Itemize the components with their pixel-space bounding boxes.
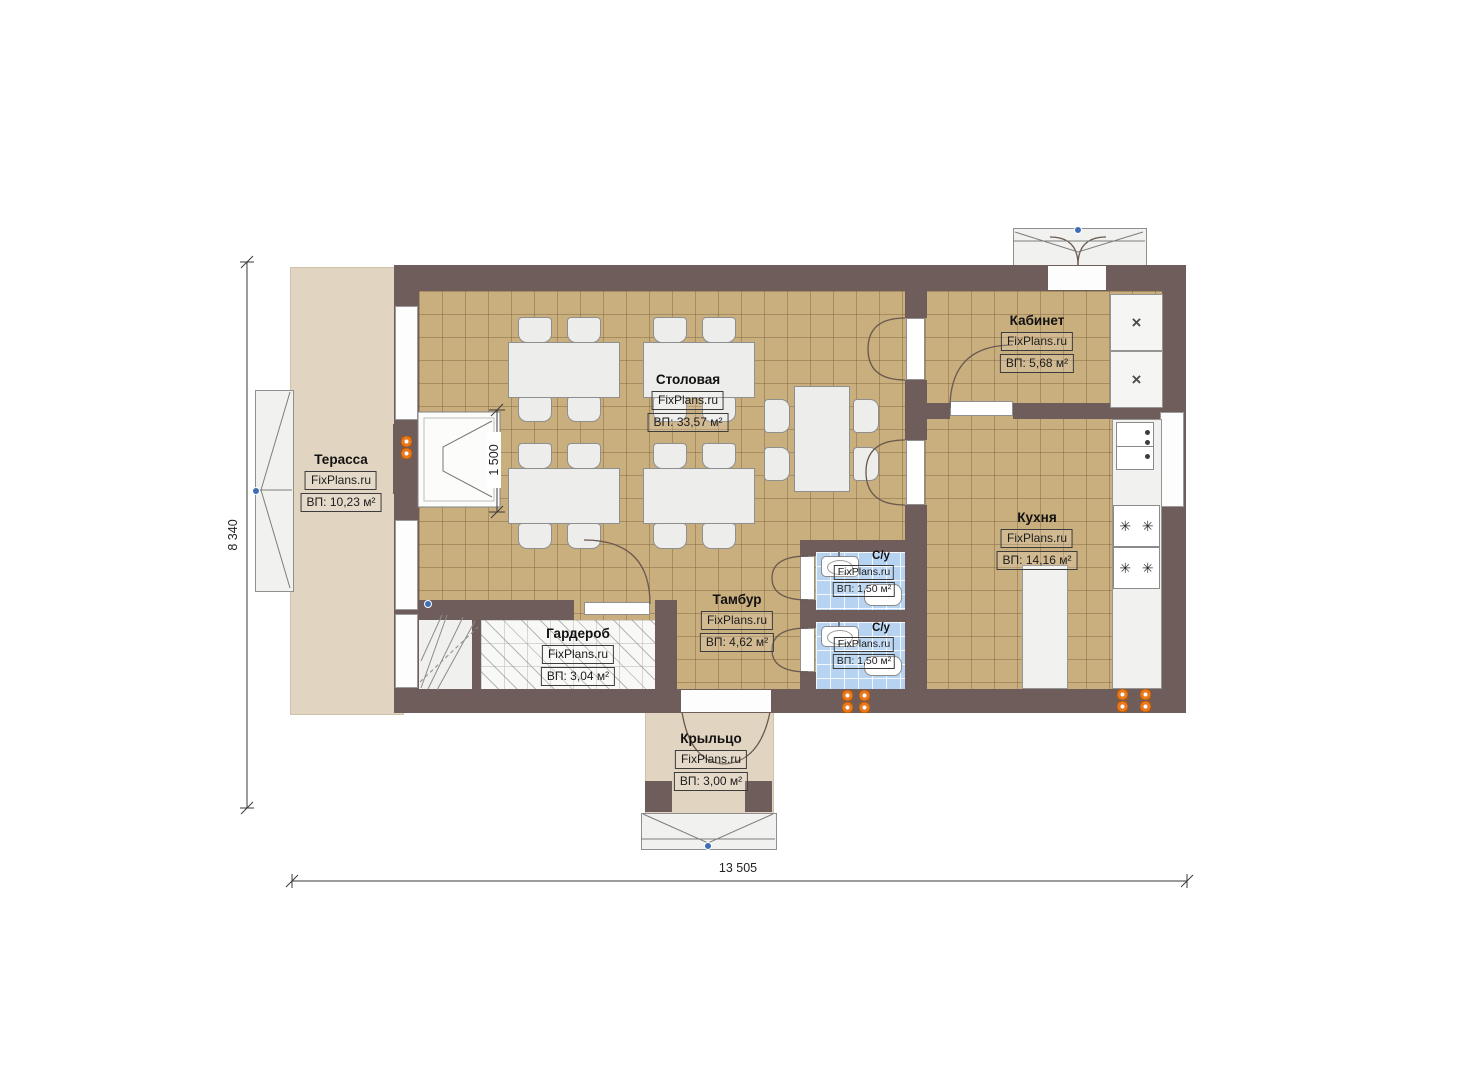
radiator-icon [858,690,871,713]
room-name: Тамбур [713,592,762,608]
room-name: Кухня [1017,510,1056,526]
office-entry-steps [1013,228,1147,267]
stove-burners: ✳ ✳ [1113,547,1160,589]
brand-watermark: FixPlans.ru [834,565,895,580]
chair [567,396,601,422]
porch-steps [641,813,777,850]
chair [702,317,736,343]
kitchen-island-counter [1022,565,1068,689]
window-left-3 [395,614,418,688]
door-leaf-office-kitchen [950,401,1013,416]
wall-dining-right-1 [905,291,927,318]
room-label-porch: Крыльцо FixPlans.ru ВП: 3,00 м² [674,731,748,791]
wall-office-kitchen-1 [927,403,950,419]
room-label-bath-top: С/у FixPlans.ru ВП: 1,50 м² [833,550,895,597]
brand-watermark: FixPlans.ru [542,645,614,664]
wall-bath-left-2 [800,600,816,628]
kitchen-sink-divider [1116,446,1154,447]
dining-table [508,342,620,398]
burner-icon: ✳ [1119,518,1131,535]
door-leaf-wardrobe [584,602,650,615]
room-area: ВП: 3,04 м² [541,667,615,686]
dining-table [643,468,755,524]
room-name: Столовая [656,372,720,388]
brand-watermark: FixPlans.ru [1001,529,1073,548]
room-name: Гардероб [546,626,610,642]
chair [853,447,879,481]
chair [653,523,687,549]
porch-entry-opening [681,690,771,712]
room-label-office: Кабинет FixPlans.ru ВП: 5,68 м² [1000,313,1074,373]
room-area: ВП: 14,16 м² [997,551,1078,570]
fireplace-back-plate [393,424,420,494]
room-area: ВП: 1,50 м² [833,654,895,669]
room-label-bath-bottom: С/у FixPlans.ru ВП: 1,50 м² [833,622,895,669]
chair [518,443,552,469]
chair [702,523,736,549]
porch-pillar-left [645,781,672,812]
dimension-fireplace-width: 1 500 [487,432,501,488]
door-leaf-bath-bottom [800,628,815,672]
chair [567,443,601,469]
chair [653,317,687,343]
wall-wardrobe-top [412,600,574,620]
chair [518,523,552,549]
wall-stairs-divider [472,614,481,689]
chair [764,447,790,481]
room-area: ВП: 10,23 м² [301,493,382,512]
room-label-kitchen: Кухня FixPlans.ru ВП: 14,16 м² [997,510,1078,570]
chair [764,399,790,433]
door-leaf-office [906,318,925,380]
room-name: Кабинет [1010,313,1065,329]
office-entry-opening [1048,266,1106,290]
terrace-entry-steps [255,390,294,592]
chair [853,399,879,433]
burner-icon: ✳ [1142,560,1154,577]
brand-watermark: FixPlans.ru [675,750,747,769]
burner-icon: ✳ [1142,518,1154,535]
room-label-tambour: Тамбур FixPlans.ru ВП: 4,62 м² [700,592,774,652]
chair [567,317,601,343]
window-left-1 [395,306,418,420]
room-area: ВП: 3,00 м² [674,772,748,791]
porch-pillar-right [745,781,772,812]
office-cabinet: × [1110,294,1163,351]
room-name: Терасса [314,452,368,468]
stove-burners: ✳ ✳ [1113,505,1160,547]
room-area: ВП: 5,68 м² [1000,354,1074,373]
radiator-icon [400,436,413,459]
wall-wardrobe-tambour [655,600,677,689]
room-label-dining: Столовая FixPlans.ru ВП: 33,57 м² [648,372,729,432]
faucet-dot [1145,430,1150,435]
wall-bath-left-1 [800,546,816,556]
dimension-overall-width: 13 505 [708,861,768,875]
radiator-icon [1116,689,1129,712]
cabinet-cross-icon: × [1132,313,1142,333]
dimension-overall-height: 8 340 [226,507,240,563]
door-leaf-kitchen [906,440,925,505]
chair [518,317,552,343]
room-label-wardrobe: Гардероб FixPlans.ru ВП: 3,04 м² [541,626,615,686]
radiator-icon [1139,689,1152,712]
stairs-floor [419,612,472,689]
chair [518,396,552,422]
faucet-dot [1145,454,1150,459]
office-cabinet: × [1110,351,1163,408]
room-area: ВП: 33,57 м² [648,413,729,432]
brand-watermark: FixPlans.ru [652,391,724,410]
floor-plan-canvas: × × ✳ ✳ ✳ ✳ [0,0,1474,1080]
chair [567,523,601,549]
room-name: С/у [872,550,890,563]
window-left-2 [395,520,418,610]
dining-table [508,468,620,524]
dining-table-vertical [794,386,850,492]
radiator-icon [841,690,854,713]
room-label-terrace: Терасса FixPlans.ru ВП: 10,23 м² [301,452,382,512]
wall-dining-right-2 [905,380,927,440]
room-area: ВП: 1,50 м² [833,582,895,597]
wall-dining-right-3 [905,505,927,689]
chair [653,443,687,469]
faucet-dot [1145,440,1150,445]
brand-watermark: FixPlans.ru [305,471,377,490]
room-name: Крыльцо [680,731,741,747]
burner-icon: ✳ [1119,560,1131,577]
cabinet-cross-icon: × [1132,370,1142,390]
door-leaf-bath-top [800,556,815,600]
wall-bath-left-3 [800,672,816,689]
brand-watermark: FixPlans.ru [834,637,895,652]
chair [702,443,736,469]
room-area: ВП: 4,62 м² [700,633,774,652]
room-name: С/у [872,622,890,635]
brand-watermark: FixPlans.ru [1001,332,1073,351]
brand-watermark: FixPlans.ru [701,611,773,630]
window-right-kitchen [1160,412,1184,507]
